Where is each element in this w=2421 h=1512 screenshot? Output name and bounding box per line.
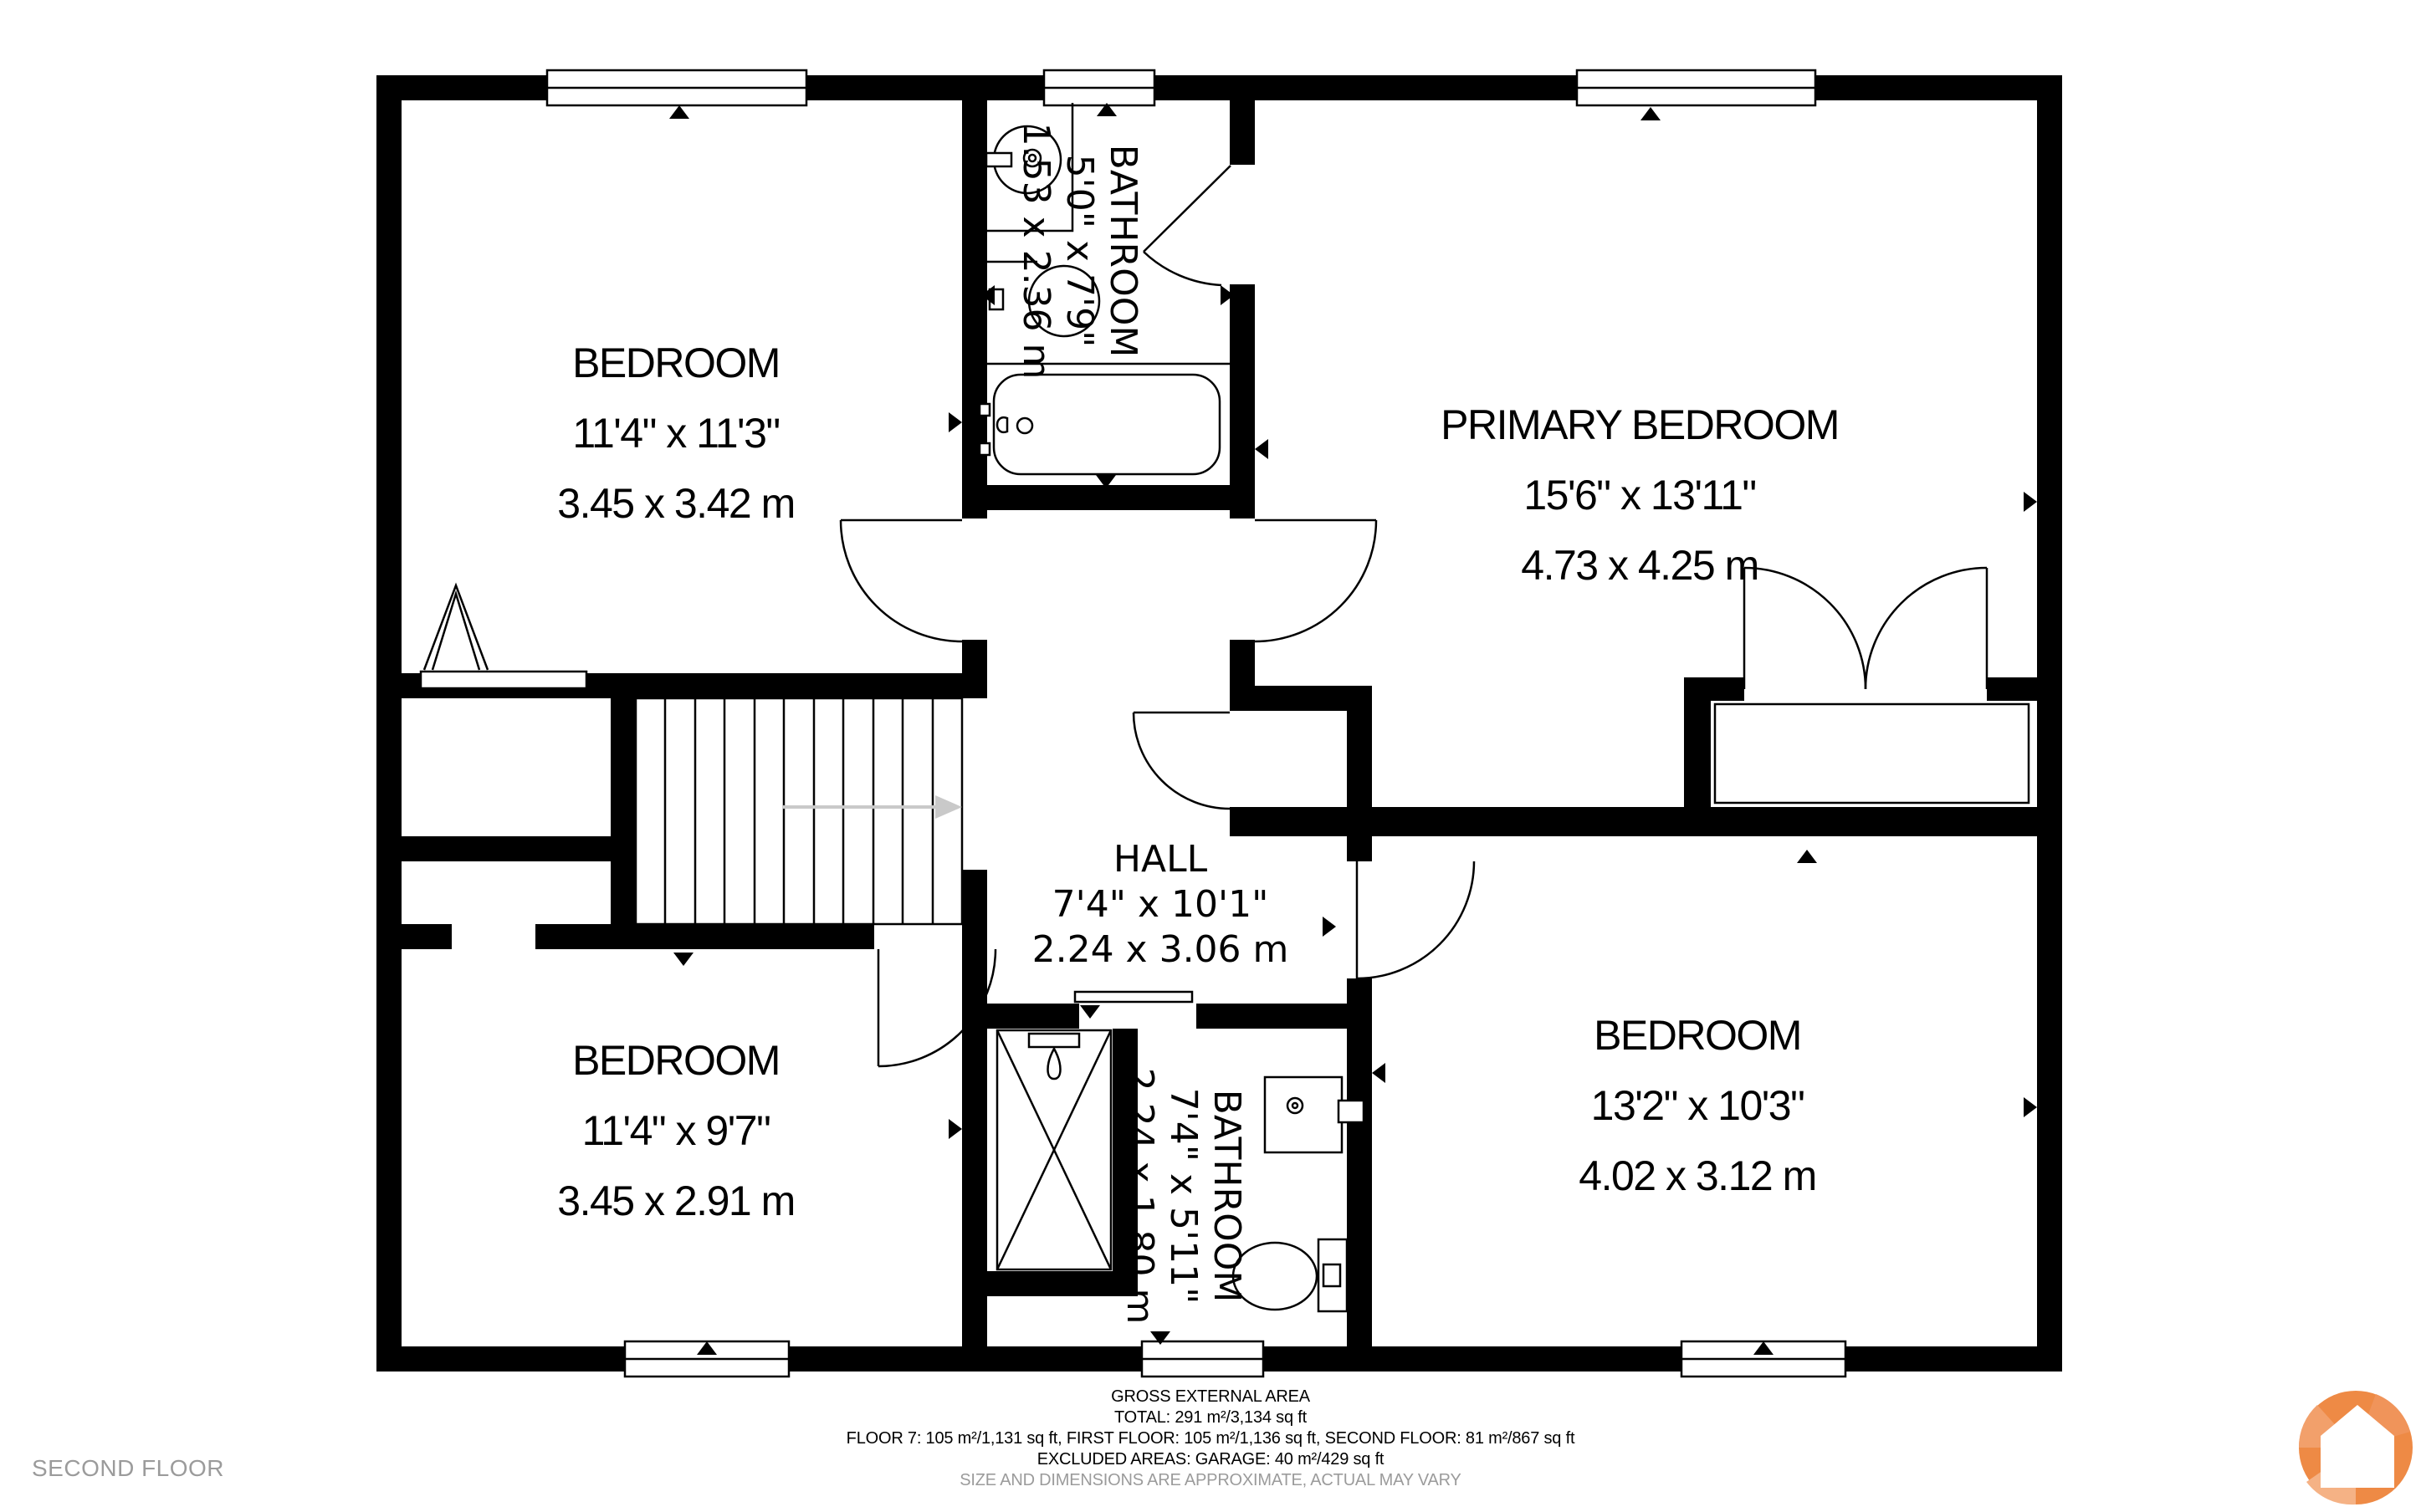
marker-up-icon xyxy=(669,105,689,119)
room-dim-ft: 5'0" x 7'9" xyxy=(1057,75,1101,427)
room-dim-m: 4.73 x 4.25 m xyxy=(1347,530,1932,600)
room-dim-m: 3.45 x 2.91 m xyxy=(425,1166,927,1236)
marker-right-icon xyxy=(2024,492,2037,512)
room-name: HALL xyxy=(951,837,1369,882)
label-bedroom-top-left: BEDROOM 11'4" x 11'3" 3.45 x 3.42 m xyxy=(425,328,927,539)
staircase xyxy=(636,698,962,924)
room-dim-m: 4.02 x 3.12 m xyxy=(1446,1141,1948,1211)
room-dim-m: 2.24 x 3.06 m xyxy=(951,927,1369,973)
bedroom-closet-recess xyxy=(421,585,586,688)
room-dim-m: 3.45 x 3.42 m xyxy=(425,468,927,539)
marker-down-icon xyxy=(1080,1005,1100,1019)
room-name: BEDROOM xyxy=(425,1025,927,1096)
area-summary: GROSS EXTERNAL AREA TOTAL: 291 m²/3,134 … xyxy=(667,1387,1754,1491)
door-bedroom-bottom-right xyxy=(1357,861,1474,978)
closet-door-triangle-icon xyxy=(424,585,488,670)
room-name: BEDROOM xyxy=(1446,1000,1948,1070)
logo-house-icon xyxy=(2297,1389,2414,1506)
label-bathroom-bottom: BATHROOM 7'4" x 5'11" 2.24 x 1.80 m xyxy=(1118,1020,1248,1372)
shower-icon xyxy=(997,1030,1111,1269)
double-door-primary-closet xyxy=(1715,568,2029,803)
window-bedroom-top-left xyxy=(547,70,806,105)
door-hall-closet xyxy=(1134,713,1230,809)
room-name: PRIMARY BEDROOM xyxy=(1347,390,1932,460)
label-bedroom-bottom-right: BEDROOM 13'2" x 10'3" 4.02 x 3.12 m xyxy=(1446,1000,1948,1211)
marker-up-icon xyxy=(1797,850,1817,863)
toilet-icon xyxy=(1233,1239,1347,1311)
marker-up-icon xyxy=(1640,107,1661,120)
marker-down-icon xyxy=(673,953,694,966)
area-summary-total: TOTAL: 291 m²/3,134 sq ft xyxy=(667,1407,1754,1428)
room-dim-ft: 7'4" x 5'11" xyxy=(1161,1020,1205,1372)
room-dim-ft: 11'4" x 9'7" xyxy=(425,1096,927,1166)
window-primary-bedroom xyxy=(1577,70,1815,105)
area-summary-floors: FLOOR 7: 105 m²/1,131 sq ft, FIRST FLOOR… xyxy=(667,1428,1754,1449)
threshold-bathroom-bottom xyxy=(1075,992,1192,1002)
label-bathroom-top: BATHROOM 5'0" x 7'9" 1.53 x 2.36 m xyxy=(1014,75,1144,427)
room-dim-m: 2.24 x 1.80 m xyxy=(1118,1020,1161,1372)
room-dim-ft: 11'4" x 11'3" xyxy=(425,398,927,468)
floorplan-page: BEDROOM 11'4" x 11'3" 3.45 x 3.42 m BATH… xyxy=(0,0,2421,1512)
room-name: BATHROOM xyxy=(1101,75,1144,427)
marker-right-icon xyxy=(949,1119,962,1139)
door-bathroom-top xyxy=(1144,166,1231,285)
label-hall: HALL 7'4" x 10'1" 2.24 x 3.06 m xyxy=(951,837,1369,973)
floor-label: SECOND FLOOR xyxy=(32,1455,224,1482)
marker-right-icon xyxy=(949,412,962,432)
label-primary-bedroom: PRIMARY BEDROOM 15'6" x 13'11" 4.73 x 4.… xyxy=(1347,390,1932,600)
room-name: BEDROOM xyxy=(425,328,927,398)
room-dim-ft: 15'6" x 13'11" xyxy=(1347,460,1932,530)
area-summary-disclaimer: SIZE AND DIMENSIONS ARE APPROXIMATE, ACT… xyxy=(667,1470,1754,1491)
label-bedroom-bottom-left: BEDROOM 11'4" x 9'7" 3.45 x 2.91 m xyxy=(425,1025,927,1236)
stairs-direction-arrow xyxy=(782,795,962,819)
area-summary-excluded: EXCLUDED AREAS: GARAGE: 40 m²/429 sq ft xyxy=(667,1449,1754,1470)
marker-right-icon xyxy=(2024,1097,2037,1117)
marker-left-icon xyxy=(1372,1063,1385,1083)
room-name: BATHROOM xyxy=(1205,1020,1248,1372)
room-dim-ft: 7'4" x 10'1" xyxy=(951,882,1369,927)
room-dim-m: 1.53 x 2.36 m xyxy=(1014,75,1057,427)
marker-left-icon xyxy=(1255,439,1268,459)
area-summary-title: GROSS EXTERNAL AREA xyxy=(667,1387,1754,1407)
room-dim-ft: 13'2" x 10'3" xyxy=(1446,1070,1948,1141)
